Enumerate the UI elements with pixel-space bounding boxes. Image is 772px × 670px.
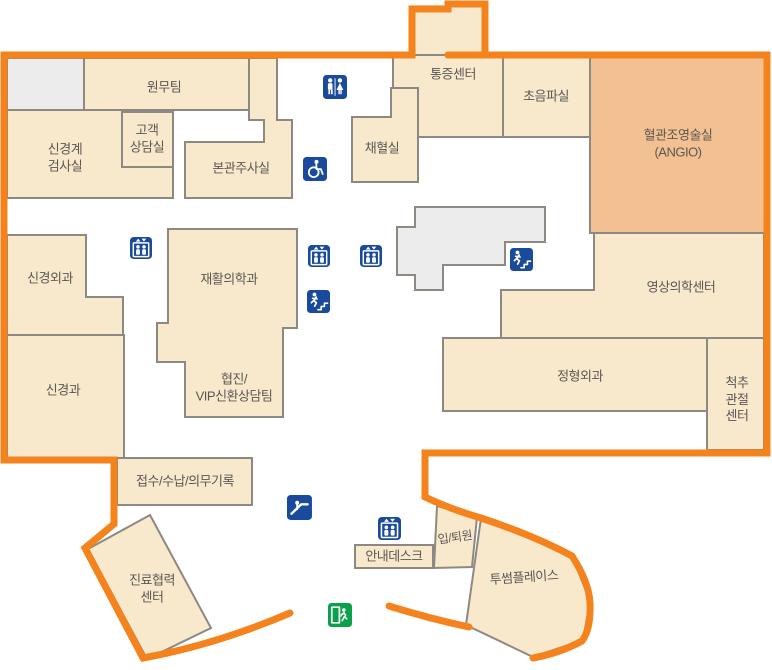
elevator-icon: [308, 245, 330, 267]
wheelchair-icon: [303, 157, 327, 181]
room-utility: [7, 58, 84, 110]
room-neurosurgery: [7, 235, 123, 335]
room-reception-records: [117, 458, 252, 505]
emergency-exit-icon: [328, 603, 352, 627]
elevator-icon: [360, 245, 382, 267]
room-neurology: [7, 335, 124, 458]
room-imaging-center: [501, 233, 764, 338]
room-blood-collection: [352, 88, 418, 182]
room-rehabilitation: [157, 229, 297, 417]
room-angio: [590, 55, 765, 233]
stairs-icon: [307, 290, 330, 313]
room-info-desk: [355, 545, 433, 568]
elevator-icon: [130, 237, 152, 259]
room-top-annex: [412, 5, 486, 58]
restroom-icon: [323, 75, 347, 99]
stairs-icon: [510, 248, 533, 271]
room-administration: [84, 58, 249, 110]
room-customer-consult: [122, 112, 173, 167]
escalator-icon: [287, 495, 312, 520]
room-orthopedics: [443, 338, 707, 411]
room-ultrasound: [503, 55, 590, 137]
floor-map: 원무팀 신경계 검사실 고객 상담실 본관주사실 채혈실 통증센터 초음파실 혈…: [0, 0, 772, 670]
floor-outline-inner-arc: [389, 606, 469, 627]
rooms-layer: [7, 5, 765, 659]
room-spine-joint-center: [707, 338, 764, 450]
elevator-icon: [378, 517, 401, 540]
floor-map-canvas: [0, 0, 772, 670]
